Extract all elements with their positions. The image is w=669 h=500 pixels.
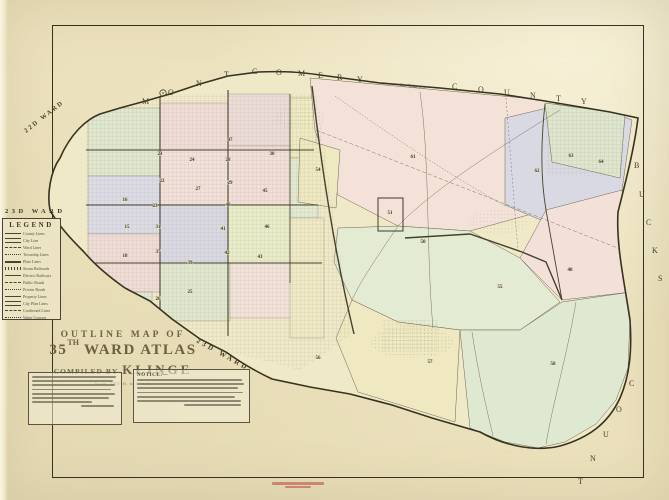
- plate-number: 30: [270, 152, 276, 157]
- legend-line-sample: [5, 317, 21, 318]
- plate-number: 62: [535, 169, 541, 174]
- legend-item: Property Lines: [5, 293, 58, 300]
- ward-label-nw: 22D WARD: [23, 99, 66, 134]
- legend-item-label: Confirmed Lines: [23, 308, 50, 313]
- fine-print-line: [137, 396, 235, 398]
- plate-number: 18: [123, 254, 129, 259]
- legend-item: Confirmed Lines: [5, 307, 58, 314]
- county-label-bucks: S: [658, 274, 662, 283]
- legend-title: LEGEND: [5, 221, 58, 229]
- fine-print-line: [137, 392, 243, 394]
- county-label-montgomery: M: [142, 97, 149, 106]
- fine-print-line: [32, 389, 111, 391]
- legend-item-label: Steam Railroads: [23, 266, 49, 271]
- plate-number: 42: [225, 251, 231, 256]
- west-ward-label: 23D WARD: [5, 208, 66, 215]
- county-label-county-top: T: [556, 94, 561, 103]
- legend-item: Plate Lines: [5, 258, 58, 265]
- fine-print-line: [137, 379, 242, 381]
- county-label-county-top: N: [530, 91, 536, 100]
- county-label-montgomery: N: [196, 79, 202, 88]
- county-label-montgomery: R: [337, 73, 343, 82]
- legend-item-label: County Lines: [23, 231, 45, 236]
- fine-print-line: [32, 376, 116, 378]
- county-label-county-right: O: [616, 405, 622, 414]
- county-label-county-top: U: [504, 88, 510, 97]
- legend-item-label: Water Courses: [23, 315, 46, 320]
- county-label-montgomery: O: [276, 68, 282, 77]
- county-label-bucks: B: [634, 161, 639, 170]
- legend-item-label: City Plan Lines: [23, 301, 48, 306]
- plate-number: 56: [316, 356, 322, 361]
- legend-line-sample: [5, 310, 21, 311]
- fine-print-line: [32, 384, 115, 386]
- plate-number: 39: [188, 261, 194, 266]
- legend-item: City Plan Lines: [5, 300, 58, 307]
- fine-print-line: [32, 393, 115, 395]
- notice-text: [137, 379, 246, 406]
- plate-number: 21: [158, 152, 164, 157]
- surveyor-note: [28, 372, 122, 425]
- county-label-montgomery: M: [298, 69, 305, 78]
- legend-line-sample: [5, 289, 21, 290]
- plate-number: 37: [156, 250, 162, 255]
- street-grid-ne: [546, 106, 624, 176]
- plate-number: 28: [226, 158, 232, 163]
- legend-line-sample: [5, 267, 21, 270]
- county-label-county-right: U: [603, 430, 609, 439]
- fine-print-line: [32, 397, 109, 399]
- plate-number: 55: [498, 285, 504, 290]
- fine-print-line: [32, 380, 113, 382]
- legend-line-sample: [5, 254, 21, 255]
- plate-number: 58: [551, 362, 557, 367]
- legend-item-label: Electric Railways: [23, 273, 51, 278]
- plate-number: 31: [156, 225, 162, 230]
- atlas-title-text: WARD ATLAS: [84, 342, 197, 358]
- legend-item-label: Public Roads: [23, 280, 44, 285]
- street-grid-texture: [86, 94, 352, 370]
- atlas-page: MONTGOMERYCOUNTYBUCKSCOUNT22D WARD23D WA…: [0, 0, 669, 500]
- plate-number: 29: [228, 181, 234, 186]
- legend-line-sample: [5, 301, 21, 306]
- plate-number: 25: [188, 290, 194, 295]
- plate-number: 41: [221, 227, 227, 232]
- fine-print-line: [137, 400, 241, 402]
- county-label-bucks: U: [639, 190, 645, 199]
- legend-line-sample: [5, 261, 21, 263]
- county-label-montgomery: G: [252, 67, 258, 76]
- plate-number: 24: [190, 158, 196, 163]
- plate-number: 50: [421, 240, 427, 245]
- plate-number: 45: [263, 189, 269, 194]
- map-title-line1: OUTLINE MAP OF: [28, 330, 218, 340]
- fine-print-line: [81, 405, 114, 407]
- county-label-county-top: O: [478, 85, 484, 94]
- county-label-montgomery: Y: [357, 75, 363, 84]
- legend-item-label: City Line: [23, 238, 38, 243]
- legend-line-sample: [5, 233, 21, 234]
- plate-number: 22: [160, 179, 166, 184]
- fine-print-line: [137, 383, 244, 385]
- plate-number: 43: [258, 255, 264, 260]
- county-label-bucks: C: [646, 218, 651, 227]
- plate-number: 47: [228, 138, 234, 143]
- ward-number-ordinal: TH: [67, 338, 79, 347]
- county-label-montgomery: E: [318, 71, 323, 80]
- legend-item: Private Roads: [5, 286, 58, 293]
- plate-number: 51: [388, 211, 394, 216]
- legend-item: Water Courses: [5, 314, 58, 321]
- plate-number: 15: [125, 225, 131, 230]
- legend-item: City Line: [5, 237, 58, 244]
- legend-line-sample: [5, 296, 21, 297]
- legend-item: Public Roads: [5, 279, 58, 286]
- plate-number: 61: [411, 155, 417, 160]
- ward-map: MONTGOMERYCOUNTYBUCKSCOUNT22D WARD23D WA…: [0, 0, 669, 500]
- plate-number: 46: [265, 225, 271, 230]
- notice-note: NOTICE:—: [133, 369, 250, 423]
- legend-line-sample: [5, 238, 21, 243]
- legend-item: County Lines: [5, 230, 58, 237]
- notice-title: NOTICE:—: [137, 373, 246, 378]
- legend-rows: County LinesCity LineWard LinesTownship …: [5, 230, 58, 321]
- legend-box: LEGEND County LinesCity LineWard LinesTo…: [2, 218, 61, 320]
- legend-item: Ward Lines: [5, 244, 58, 251]
- county-label-bucks: K: [652, 246, 658, 255]
- library-stamp: [268, 481, 328, 489]
- plate-number: 54: [316, 168, 322, 173]
- legend-line-sample: [5, 247, 21, 248]
- fine-print-line: [32, 401, 92, 403]
- plate-number: 64: [599, 160, 605, 165]
- legend-item: Electric Railways: [5, 272, 58, 279]
- plate-number: 40: [226, 203, 232, 208]
- surveyor-note-text: [32, 376, 118, 407]
- plate-number: 26: [156, 297, 162, 302]
- county-label-county-top: Y: [581, 97, 587, 106]
- fine-print-line: [137, 387, 238, 389]
- legend-item-label: Ward Lines: [23, 245, 41, 250]
- county-label-county-top: C: [452, 82, 457, 91]
- plate-number: 57: [428, 360, 434, 365]
- county-label-montgomery: O: [168, 88, 174, 97]
- plate-number: 27: [196, 187, 202, 192]
- legend-item: Township Lines: [5, 251, 58, 258]
- county-label-montgomery: T: [224, 70, 229, 79]
- legend-item-label: Private Roads: [23, 287, 45, 292]
- legend-item: Steam Railroads: [5, 265, 58, 272]
- plate-number: 23: [153, 204, 159, 209]
- ward-number: 35: [49, 342, 67, 358]
- plate-number: 63: [569, 154, 575, 159]
- map-title-line2: 35TH WARD ATLAS: [28, 341, 218, 359]
- fine-print-line: [184, 404, 241, 406]
- legend-item-label: Township Lines: [23, 252, 49, 257]
- county-label-county-right: T: [578, 477, 583, 486]
- county-label-county-right: N: [590, 454, 596, 463]
- legend-line-sample: [5, 275, 21, 276]
- legend-item-label: Property Lines: [23, 294, 47, 299]
- legend-item-label: Plate Lines: [23, 259, 41, 264]
- legend-line-sample: [5, 282, 21, 283]
- plate-number: 48: [568, 268, 574, 273]
- plate-number: 16: [123, 198, 129, 203]
- county-label-county-right: C: [629, 379, 634, 388]
